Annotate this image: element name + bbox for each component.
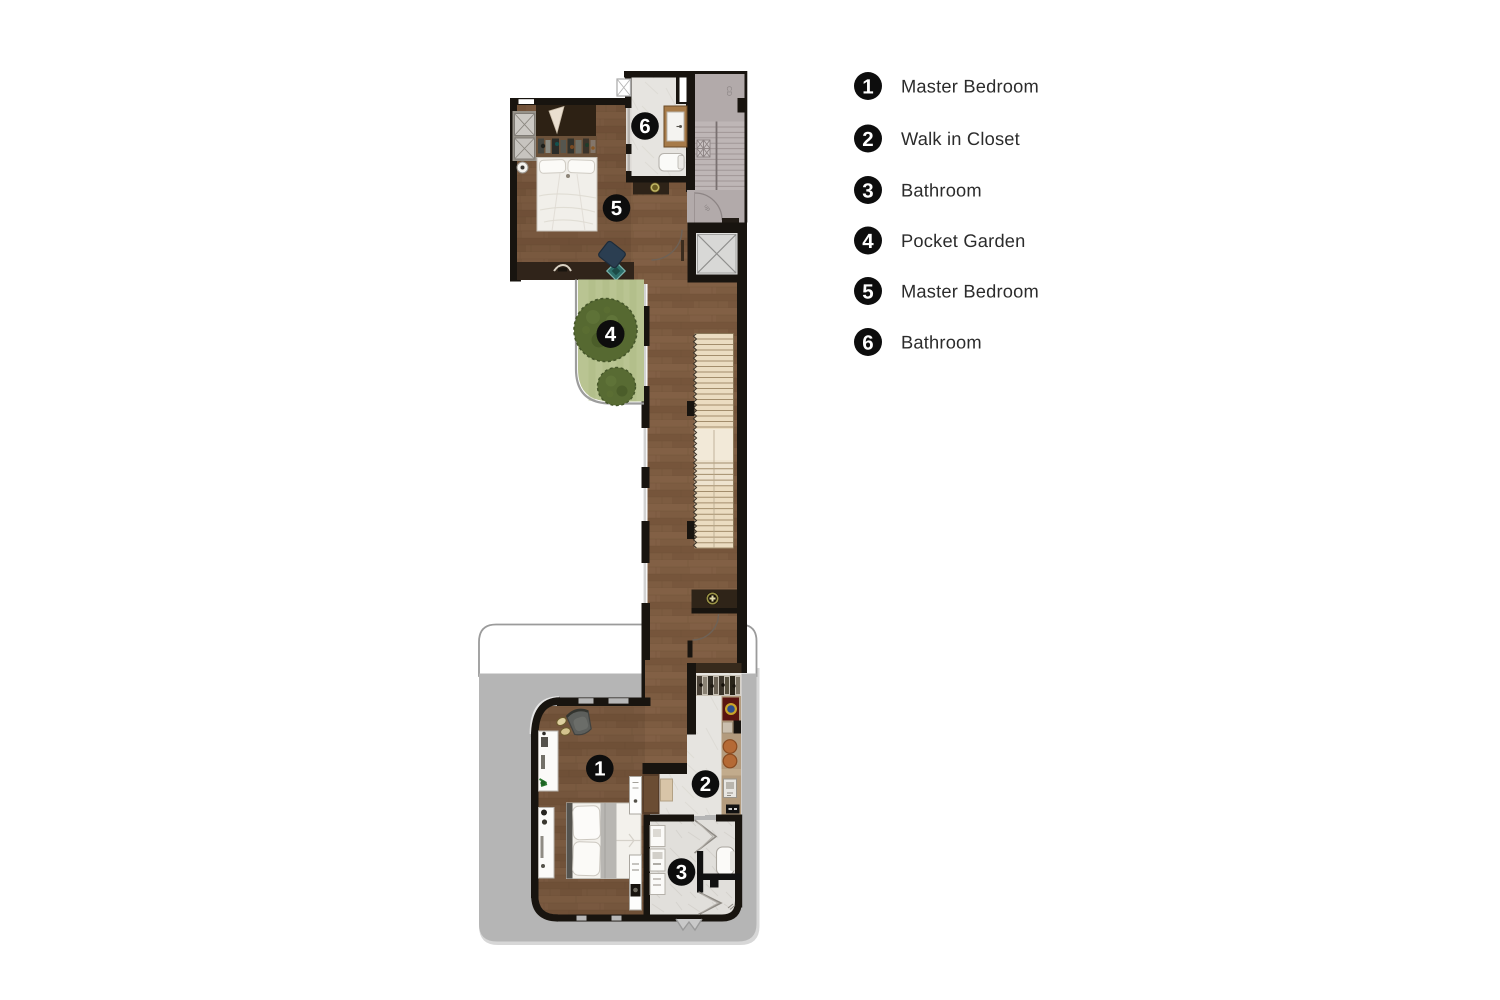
svg-text:3: 3 — [862, 179, 873, 202]
svg-text:1: 1 — [862, 75, 873, 98]
svg-text:Bathroom: Bathroom — [901, 180, 982, 201]
svg-text:6: 6 — [639, 115, 650, 138]
svg-text:4: 4 — [605, 323, 617, 346]
svg-text:Bathroom: Bathroom — [901, 332, 982, 353]
svg-text:Master Bedroom: Master Bedroom — [901, 76, 1039, 97]
svg-text:Master Bedroom: Master Bedroom — [901, 281, 1039, 302]
svg-text:3: 3 — [676, 861, 687, 884]
svg-text:CD: CD — [725, 86, 732, 96]
svg-text:1: 1 — [594, 758, 605, 781]
svg-text:4: 4 — [862, 230, 874, 253]
svg-text:6: 6 — [862, 331, 873, 354]
svg-text:5: 5 — [862, 280, 873, 303]
svg-text:2: 2 — [700, 773, 711, 796]
svg-text:5: 5 — [611, 197, 622, 220]
svg-text:Walk in Closet: Walk in Closet — [901, 128, 1020, 149]
svg-text:2: 2 — [862, 128, 873, 151]
svg-text:Pocket Garden: Pocket Garden — [901, 230, 1026, 251]
